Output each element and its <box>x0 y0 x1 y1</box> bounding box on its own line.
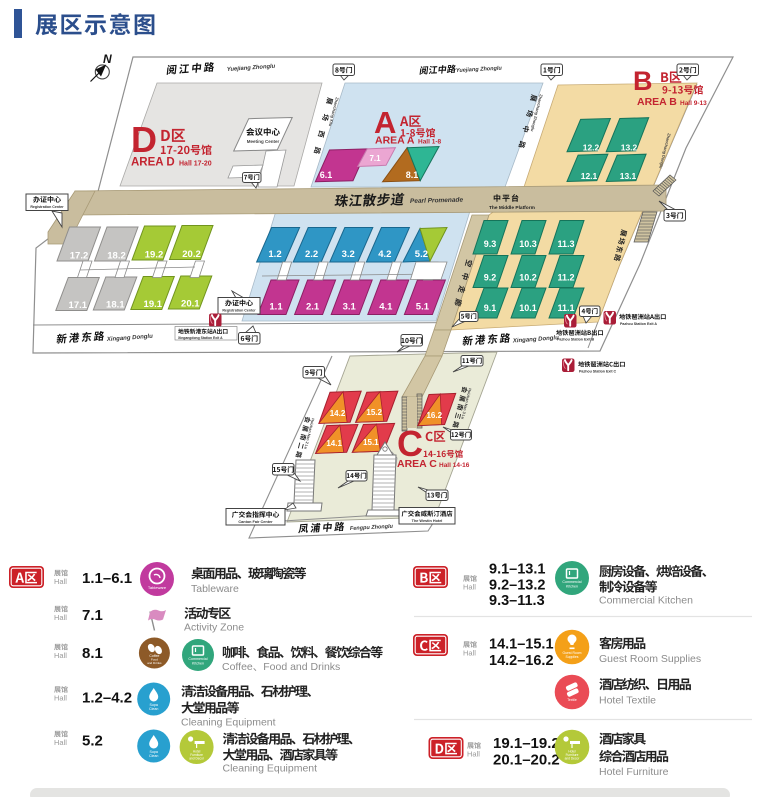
svg-text:10.1: 10.1 <box>519 303 537 313</box>
svg-text:18.1: 18.1 <box>106 300 125 311</box>
svg-text:8.1: 8.1 <box>82 645 103 662</box>
svg-text:15.1: 15.1 <box>363 438 379 447</box>
svg-text:7.1: 7.1 <box>369 154 381 163</box>
svg-text:Clean: Clean <box>149 707 158 711</box>
svg-text:Hall 1-8: Hall 1-8 <box>418 139 442 146</box>
svg-text:Hall 9-13: Hall 9-13 <box>680 100 707 107</box>
svg-text:19.1: 19.1 <box>144 299 163 310</box>
svg-text:20.2: 20.2 <box>182 249 201 260</box>
svg-text:15.2: 15.2 <box>366 408 382 417</box>
svg-text:AREA C: AREA C <box>397 458 437 470</box>
svg-text:16.2: 16.2 <box>426 411 442 420</box>
svg-text:AREA D: AREA D <box>131 157 175 169</box>
svg-text:5.1: 5.1 <box>416 302 430 313</box>
svg-text:Xingangdong Station Exit A: Xingangdong Station Exit A <box>178 336 223 340</box>
svg-text:Hall: Hall <box>54 694 67 703</box>
svg-text:Hall: Hall <box>467 750 480 759</box>
svg-text:Textile: Textile <box>567 698 577 702</box>
svg-text:Hall: Hall <box>463 583 476 592</box>
svg-text:19.2: 19.2 <box>145 250 164 261</box>
svg-text:AREA B: AREA B <box>637 96 677 108</box>
svg-text:14.1: 14.1 <box>326 439 342 448</box>
svg-text:13.1: 13.1 <box>620 171 637 181</box>
svg-text:6.1: 6.1 <box>320 170 333 180</box>
svg-text:11.3: 11.3 <box>557 239 574 249</box>
svg-text:9.1: 9.1 <box>484 303 497 313</box>
svg-text:Hall: Hall <box>54 577 67 586</box>
svg-text:17.2: 17.2 <box>70 251 89 262</box>
svg-text:20.1: 20.1 <box>181 299 200 310</box>
svg-text:Canton Fair Center: Canton Fair Center <box>238 520 273 524</box>
svg-text:Hotel Furniture: Hotel Furniture <box>599 766 669 778</box>
svg-text:The Middle Platform: The Middle Platform <box>489 205 535 211</box>
svg-text:Hall: Hall <box>54 613 67 622</box>
svg-text:11.2: 11.2 <box>557 273 574 283</box>
svg-text:2.1: 2.1 <box>306 302 320 313</box>
svg-text:12.1: 12.1 <box>581 171 598 181</box>
svg-text:10.2: 10.2 <box>519 273 537 283</box>
svg-text:Guest Room Supplies: Guest Room Supplies <box>599 653 701 665</box>
svg-text:Pearl Promenade: Pearl Promenade <box>410 197 464 205</box>
svg-text:Tableware: Tableware <box>148 585 167 590</box>
svg-text:1.2: 1.2 <box>268 249 281 260</box>
svg-text:1.1: 1.1 <box>269 302 283 313</box>
svg-text:14.2: 14.2 <box>330 409 346 418</box>
svg-text:18.2: 18.2 <box>107 251 126 262</box>
svg-text:10.3: 10.3 <box>519 239 537 249</box>
svg-text:Commercial: Commercial <box>188 657 207 661</box>
svg-text:14.1–15.1: 14.1–15.1 <box>489 637 554 653</box>
svg-text:and Decor: and Decor <box>565 757 581 761</box>
svg-text:5.2: 5.2 <box>415 249 428 260</box>
svg-text:N: N <box>103 52 112 66</box>
svg-text:20.1–20.2: 20.1–20.2 <box>493 752 560 769</box>
svg-text:19.1–19.2: 19.1–19.2 <box>493 735 560 752</box>
svg-text:9.2–13.2: 9.2–13.2 <box>489 578 545 594</box>
svg-text:Hall 17-20: Hall 17-20 <box>179 161 212 168</box>
svg-text:Hall 14-16: Hall 14-16 <box>439 462 470 469</box>
svg-text:1.1–6.1: 1.1–6.1 <box>82 570 132 587</box>
svg-text:and Drinks: and Drinks <box>147 661 162 665</box>
svg-text:13.2: 13.2 <box>621 143 638 153</box>
svg-text:Supplies: Supplies <box>565 655 578 659</box>
svg-text:14.2–16.2: 14.2–16.2 <box>489 653 554 669</box>
svg-text:2.2: 2.2 <box>305 249 318 260</box>
svg-text:5.2: 5.2 <box>82 733 103 750</box>
svg-text:Kitchen: Kitchen <box>192 662 204 666</box>
svg-text:Kitchen: Kitchen <box>566 585 578 589</box>
svg-text:17.1: 17.1 <box>69 300 88 311</box>
svg-text:9.2: 9.2 <box>484 273 497 283</box>
svg-text:and Decor: and Decor <box>189 757 205 761</box>
svg-text:12.2: 12.2 <box>583 143 600 153</box>
svg-text:7.1: 7.1 <box>82 607 103 624</box>
svg-text:Clean: Clean <box>149 754 158 758</box>
svg-text:Activity Zone: Activity Zone <box>184 622 244 634</box>
svg-text:Hall: Hall <box>54 651 67 660</box>
svg-text:Fengpu Zhonglu: Fengpu Zhonglu <box>350 524 394 532</box>
svg-text:D: D <box>131 119 157 160</box>
svg-text:4.1: 4.1 <box>379 302 393 313</box>
svg-text:Cleaning Equipment: Cleaning Equipment <box>181 717 276 729</box>
svg-text:Registration Center: Registration Center <box>222 309 256 313</box>
svg-text:Hotel Textile: Hotel Textile <box>599 695 656 707</box>
svg-text:Hall: Hall <box>54 738 67 747</box>
svg-text:3.1: 3.1 <box>343 302 357 313</box>
svg-text:Pazhou Station Exit C: Pazhou Station Exit C <box>579 370 617 374</box>
svg-text:Huizhan Nan 2 Lu: Huizhan Nan 2 Lu <box>303 418 315 451</box>
svg-text:Pazhou Station Exit B: Pazhou Station Exit B <box>557 338 595 342</box>
svg-text:9.3–11.3: 9.3–11.3 <box>489 593 545 609</box>
svg-text:B: B <box>633 66 653 96</box>
svg-text:Commercial Kitchen: Commercial Kitchen <box>599 595 693 607</box>
svg-text:Pazhou Station Exit A: Pazhou Station Exit A <box>620 322 657 326</box>
svg-text:9.3: 9.3 <box>484 239 497 249</box>
svg-text:11.1: 11.1 <box>557 303 574 313</box>
svg-text:Registration Center: Registration Center <box>30 205 64 209</box>
svg-text:Tableware: Tableware <box>191 583 239 595</box>
svg-text:AREA A: AREA A <box>375 135 415 147</box>
svg-text:1.2–4.2: 1.2–4.2 <box>82 690 132 707</box>
svg-text:The Westin Hotel: The Westin Hotel <box>412 519 443 523</box>
svg-text:3.2: 3.2 <box>342 249 355 260</box>
svg-text:9.1–13.1: 9.1–13.1 <box>489 562 545 578</box>
svg-text:Commercial: Commercial <box>562 580 581 584</box>
svg-text:8.1: 8.1 <box>406 170 419 180</box>
svg-text:Meeting Center: Meeting Center <box>247 139 280 144</box>
svg-text:4.2: 4.2 <box>378 249 391 260</box>
svg-text:Hall: Hall <box>463 649 476 658</box>
svg-text:Cleaning Equipment: Cleaning Equipment <box>223 763 318 775</box>
svg-text:Coffee、Food and Drinks: Coffee、Food and Drinks <box>222 661 340 673</box>
